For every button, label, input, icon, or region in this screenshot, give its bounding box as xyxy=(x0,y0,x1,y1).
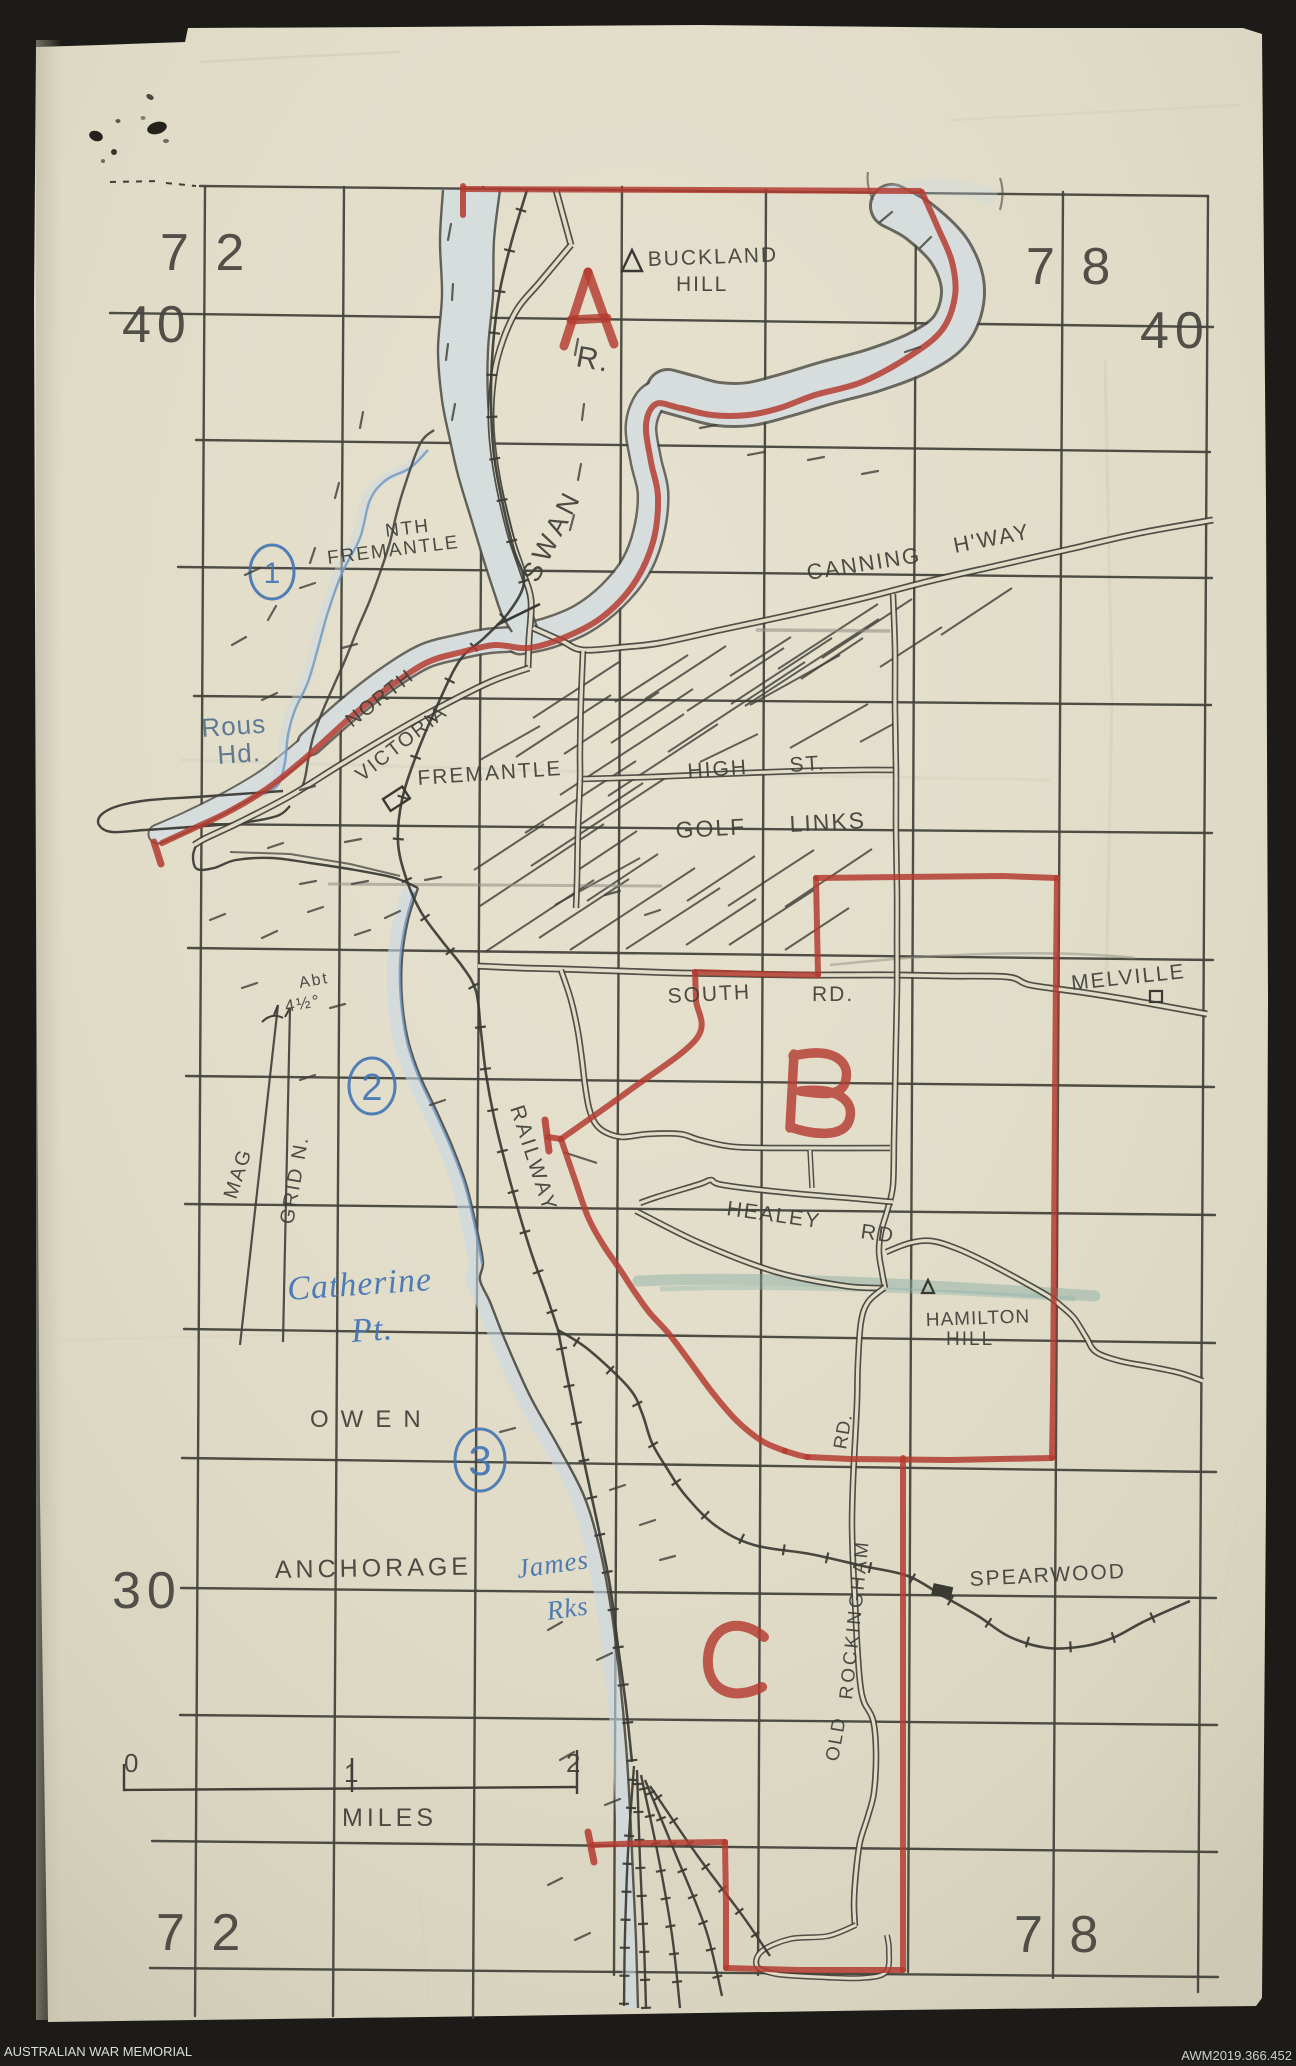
svg-text:RD.: RD. xyxy=(812,983,854,1006)
svg-text:HILL: HILL xyxy=(946,1329,994,1350)
svg-text:7 8: 7 8 xyxy=(1014,1906,1104,1964)
svg-text:ANCHORAGE: ANCHORAGE xyxy=(275,1553,473,1584)
svg-text:2: 2 xyxy=(361,1067,382,1109)
svg-text:HAMILTON: HAMILTON xyxy=(925,1306,1030,1331)
svg-text:SOUTH: SOUTH xyxy=(667,981,752,1008)
svg-text:RD: RD xyxy=(859,1220,896,1248)
svg-text:1: 1 xyxy=(264,557,281,590)
svg-text:OWEN: OWEN xyxy=(310,1406,433,1433)
svg-text:MILES: MILES xyxy=(342,1804,437,1832)
svg-text:ST.: ST. xyxy=(789,752,827,777)
svg-text:7 8: 7 8 xyxy=(1026,238,1116,296)
svg-text:HIGH: HIGH xyxy=(687,756,749,783)
svg-text:40: 40 xyxy=(122,296,192,354)
svg-text:AWM2019.366.452: AWM2019.366.452 xyxy=(1181,2048,1292,2061)
svg-text:Hd.: Hd. xyxy=(216,737,261,770)
svg-text:7 2: 7 2 xyxy=(156,1904,246,1962)
svg-text:AUSTRALIAN WAR MEMORIAL: AUSTRALIAN WAR MEMORIAL xyxy=(4,2044,192,2059)
svg-text:GOLF: GOLF xyxy=(675,813,747,843)
svg-text:LINKS: LINKS xyxy=(789,807,867,837)
svg-text:1: 1 xyxy=(344,1758,360,1788)
svg-text:0: 0 xyxy=(124,1748,140,1778)
svg-text:7 2: 7 2 xyxy=(160,224,250,282)
svg-text:40: 40 xyxy=(1140,302,1210,360)
svg-text:BUCKLAND: BUCKLAND xyxy=(647,243,778,271)
svg-text:Rks: Rks xyxy=(544,1590,591,1626)
svg-text:3: 3 xyxy=(468,1437,491,1484)
svg-text:R.: R. xyxy=(574,340,613,378)
svg-text:Pt.: Pt. xyxy=(349,1310,394,1350)
svg-text:HILL: HILL xyxy=(676,273,728,296)
svg-text:30: 30 xyxy=(112,1562,182,1620)
